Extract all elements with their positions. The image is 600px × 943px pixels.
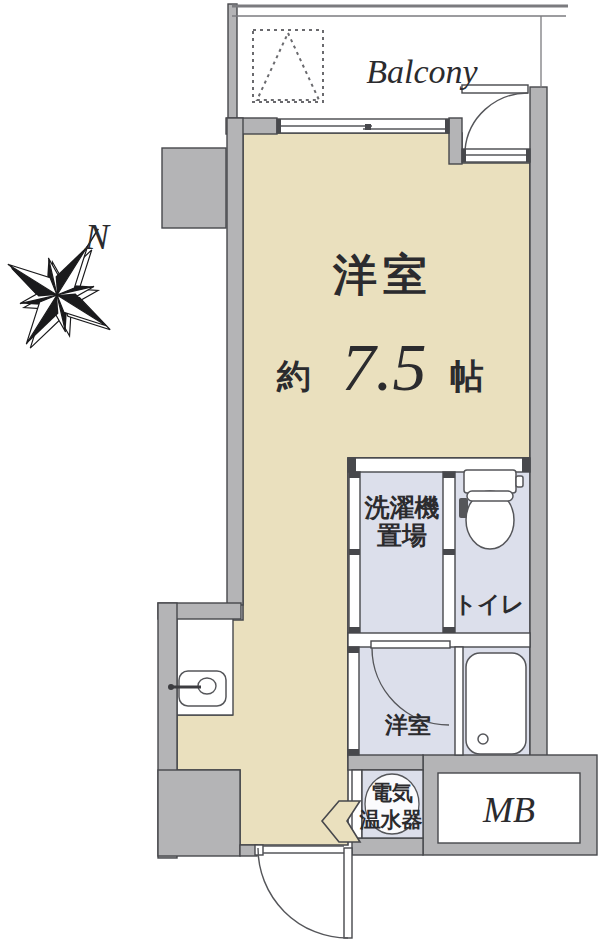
compass-rose: N <box>0 198 148 379</box>
laundry-label-line2: 置場 <box>376 521 427 549</box>
floor-plan: N Balcony 洋室 約 7.5 帖 洗濯機 置場 トイレ 洋室 電気 温水… <box>0 0 600 943</box>
balcony-label: Balcony <box>366 53 478 90</box>
laundry-label-line1: 洗濯機 <box>364 493 440 521</box>
bathtub <box>466 653 526 754</box>
main-room-size-prefix: 約 <box>276 358 311 395</box>
entrance-door <box>255 845 352 938</box>
floor-plan-canvas: N Balcony 洋室 約 7.5 帖 洗濯機 置場 トイレ 洋室 電気 温水… <box>0 0 600 943</box>
toilet-label: トイレ <box>454 591 525 617</box>
meter-box-label: MB <box>482 790 535 830</box>
compass-north-label: N <box>84 217 111 257</box>
main-room-size-unit: 帖 <box>450 358 484 395</box>
balcony-partition-door <box>462 85 528 150</box>
hall-room-label: 洋室 <box>384 712 431 738</box>
main-room-size-value: 7.5 <box>342 329 427 405</box>
main-room-label: 洋室 <box>332 251 433 300</box>
water-heater-label-line2: 温水器 <box>359 808 423 831</box>
emergency-hatch <box>253 30 323 102</box>
water-heater-label-line1: 電気 <box>371 781 413 804</box>
side-window <box>462 149 530 162</box>
main-window <box>277 119 449 133</box>
